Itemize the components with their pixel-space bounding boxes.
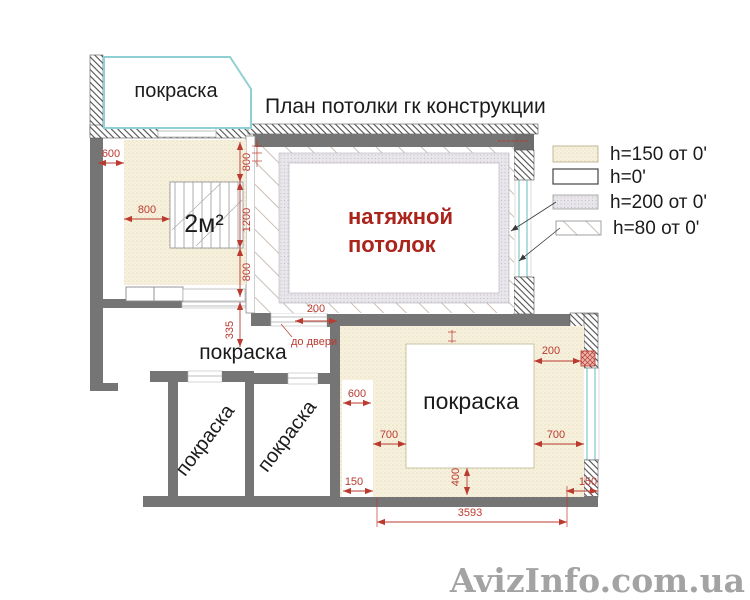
floor-plan-drawing: покраска 2м² 600 800 800 1200 bbox=[0, 0, 750, 600]
page-title: План потолки гк конструкции bbox=[265, 95, 546, 118]
legend-label-h0: h=0' bbox=[610, 167, 646, 188]
small-room-1-left-wall bbox=[168, 382, 178, 496]
legend: h=150 от 0' h=0' h=200 от 0' h=80 от 0' bbox=[511, 144, 707, 261]
dim-text: 335 bbox=[224, 321, 236, 339]
dim-text: 200 bbox=[307, 303, 325, 315]
main-top-wall bbox=[253, 134, 521, 147]
dim-text: 700 bbox=[380, 429, 398, 441]
legend-swatch-h150 bbox=[553, 146, 598, 162]
dim-text: 800 bbox=[241, 263, 253, 281]
small-rooms-divider bbox=[245, 371, 254, 496]
main-top-wall-hatch bbox=[248, 124, 538, 134]
bottom-room-label: покраска bbox=[423, 388, 519, 414]
main-room: натяжной потолок bbox=[252, 140, 528, 313]
dim-text: 150 bbox=[345, 476, 363, 488]
left-exterior-wall bbox=[90, 135, 103, 383]
small-room-1-door bbox=[188, 371, 222, 382]
balcony-left-wall bbox=[90, 55, 103, 135]
bottom-exterior-wall bbox=[143, 496, 598, 507]
bottom-room-top-wall bbox=[327, 314, 570, 327]
balcony-label: покраска bbox=[134, 80, 218, 102]
main-room-window bbox=[515, 180, 531, 277]
left-room: 2м² 600 800 800 1200 800 bbox=[98, 140, 253, 301]
balcony: покраска bbox=[104, 57, 251, 128]
dim-vertical-chain: 800 1200 800 bbox=[240, 142, 253, 297]
main-room-label-2: потолок bbox=[348, 232, 437, 257]
dim-text: 3593 bbox=[458, 507, 482, 519]
dim-text: 1200 bbox=[241, 208, 253, 232]
small-room-2-door bbox=[288, 373, 318, 384]
main-room-label-1: натяжной bbox=[348, 204, 453, 229]
wardrobe bbox=[126, 287, 245, 301]
dim-text: 400 bbox=[450, 468, 462, 486]
dim-text: 700 bbox=[547, 429, 565, 441]
area-label: 2м² bbox=[184, 210, 223, 238]
small-room-2: покраска bbox=[253, 396, 321, 476]
bottom-room-window bbox=[583, 368, 599, 460]
column-mark bbox=[581, 351, 595, 366]
legend-label-h200: h=200 от 0' bbox=[610, 192, 707, 213]
dim-text: 800 bbox=[241, 153, 253, 171]
dim-text: 600 bbox=[102, 148, 120, 160]
door-note: до двери bbox=[281, 324, 337, 348]
dim-text: 600 bbox=[348, 388, 366, 400]
legend-swatch-h80 bbox=[556, 221, 601, 235]
dim-text: 200 bbox=[542, 345, 560, 357]
legend-label-h150: h=150 от 0' bbox=[610, 144, 707, 165]
legend-label-h80: h=80 от 0' bbox=[613, 218, 699, 239]
door-note-text: до двери bbox=[291, 336, 337, 348]
left-wall-corner bbox=[90, 383, 118, 391]
top-right-corner bbox=[514, 134, 534, 150]
small-room-2-label: покраска bbox=[253, 396, 321, 476]
hallway-label: покраска bbox=[199, 341, 287, 364]
dim-text: 800 bbox=[138, 204, 156, 216]
floor-plan-page: покраска 2м² 600 800 800 1200 bbox=[0, 0, 750, 600]
legend-swatch-h200 bbox=[553, 195, 598, 209]
watermark: AvizInfo.com.ua bbox=[449, 561, 745, 600]
small-room-1: покраска bbox=[171, 400, 239, 480]
small-room-1-label: покраска bbox=[171, 400, 239, 480]
bottom-room: покраска 600 700 700 200 150 150 400 bbox=[340, 326, 598, 527]
legend-swatch-h0 bbox=[553, 169, 598, 184]
dim-text: 150 bbox=[579, 476, 597, 488]
